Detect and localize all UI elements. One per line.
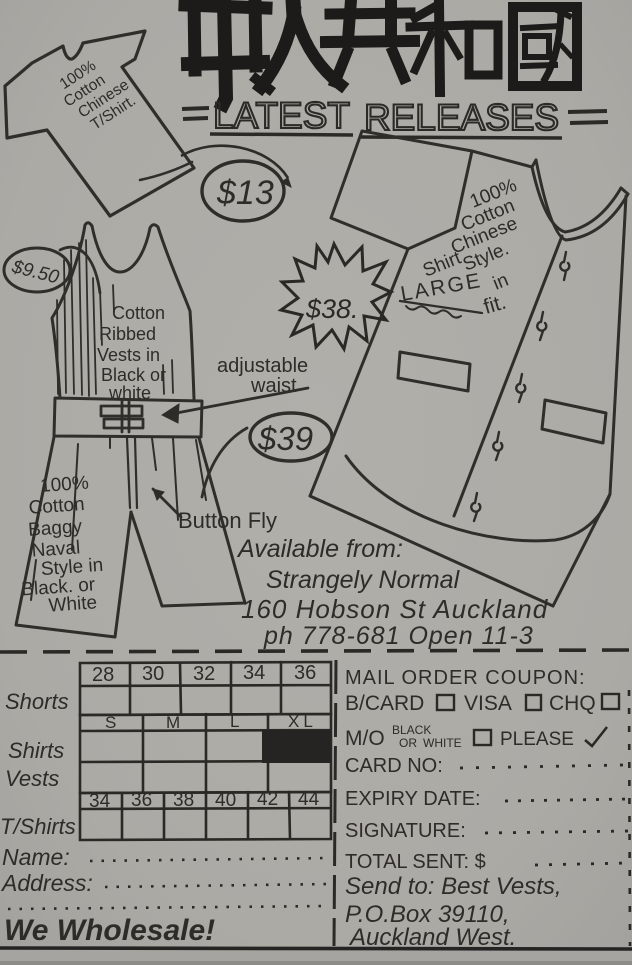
svg-text:S: S bbox=[105, 713, 116, 732]
svg-text:Vests in: Vests in bbox=[97, 345, 160, 365]
svg-text:44: 44 bbox=[298, 789, 320, 810]
svg-text:VISA: VISA bbox=[464, 692, 512, 715]
svg-text:M/O: M/O bbox=[345, 727, 385, 750]
svg-text:Vests: Vests bbox=[5, 766, 59, 791]
svg-text:MAIL ORDER COUPON:: MAIL ORDER COUPON: bbox=[345, 667, 586, 689]
svg-text:ph 778-681 Open 11-3: ph 778-681 Open 11-3 bbox=[263, 622, 534, 650]
svg-text:XL: XL bbox=[288, 712, 317, 731]
svg-text:RELEASES: RELEASES bbox=[364, 97, 562, 138]
svg-text:30: 30 bbox=[142, 663, 164, 685]
svg-text:L: L bbox=[230, 712, 239, 731]
svg-text:34: 34 bbox=[243, 662, 265, 684]
svg-text:Shorts: Shorts bbox=[5, 689, 69, 714]
svg-text:Name:: Name: bbox=[2, 844, 70, 870]
svg-text:Send to: Best Vests,: Send to: Best Vests, bbox=[345, 873, 562, 900]
svg-text:White: White bbox=[48, 592, 98, 616]
svg-text:T/Shirts: T/Shirts bbox=[0, 814, 76, 839]
svg-text:We Wholesale!: We Wholesale! bbox=[4, 914, 215, 947]
svg-text:$13: $13 bbox=[216, 174, 274, 212]
svg-text:160 Hobson St Auckland: 160 Hobson St Auckland bbox=[241, 594, 549, 624]
svg-text:adjustable: adjustable bbox=[217, 355, 308, 377]
svg-text:PLEASE: PLEASE bbox=[500, 729, 574, 750]
svg-text:LATEST: LATEST bbox=[213, 95, 353, 136]
svg-text:28: 28 bbox=[92, 664, 114, 686]
svg-text:Strangely Normal: Strangely Normal bbox=[266, 566, 461, 594]
svg-text:M: M bbox=[166, 713, 180, 732]
svg-text:Cotton: Cotton bbox=[112, 303, 165, 323]
svg-text:EXPIRY DATE:: EXPIRY DATE: bbox=[345, 788, 481, 810]
svg-text:34: 34 bbox=[89, 791, 111, 812]
svg-text:$38.: $38. bbox=[305, 294, 359, 324]
svg-text:Cotton: Cotton bbox=[28, 494, 85, 519]
svg-text:36: 36 bbox=[294, 662, 316, 684]
svg-text:Address:: Address: bbox=[0, 870, 93, 896]
svg-text:Auckland West.: Auckland West. bbox=[348, 924, 516, 951]
svg-text:OR: OR bbox=[399, 736, 417, 750]
svg-text:WHITE: WHITE bbox=[423, 736, 462, 750]
svg-text:Ribbed: Ribbed bbox=[99, 324, 156, 344]
svg-text:Button Fly: Button Fly bbox=[178, 508, 277, 533]
svg-text:38: 38 bbox=[173, 790, 194, 811]
svg-text:Shirts: Shirts bbox=[8, 738, 64, 763]
svg-text:$39: $39 bbox=[257, 420, 313, 457]
svg-text:B/CARD: B/CARD bbox=[345, 692, 424, 715]
svg-text:42: 42 bbox=[257, 789, 278, 810]
svg-text:white: white bbox=[108, 383, 151, 403]
svg-text:TOTAL SENT: $: TOTAL SENT: $ bbox=[345, 851, 486, 873]
svg-text:Available from:: Available from: bbox=[236, 535, 403, 563]
svg-text:36: 36 bbox=[131, 790, 152, 811]
svg-text:40: 40 bbox=[215, 790, 236, 811]
svg-text:CHQ: CHQ bbox=[549, 692, 596, 715]
svg-text:32: 32 bbox=[193, 663, 215, 685]
svg-text:Black or: Black or bbox=[101, 365, 166, 385]
svg-text:CARD NO:: CARD NO: bbox=[345, 755, 443, 777]
svg-text:SIGNATURE:: SIGNATURE: bbox=[345, 820, 466, 842]
svg-text:BLACK: BLACK bbox=[392, 723, 431, 737]
